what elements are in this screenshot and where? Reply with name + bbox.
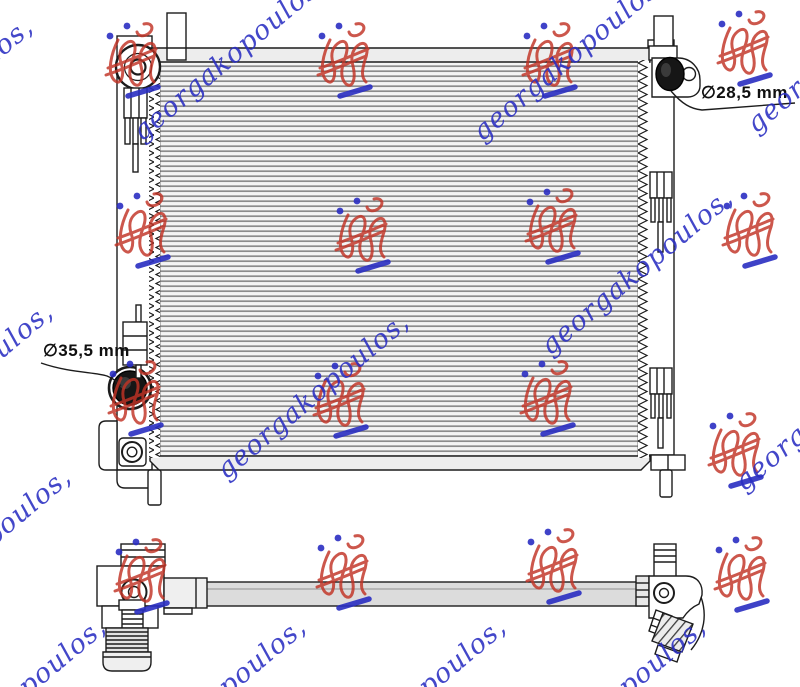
mounting-pin-top-right — [649, 16, 677, 60]
core-serrated-edge-right — [638, 60, 649, 458]
outlet-port — [109, 367, 151, 409]
core-fins — [160, 62, 638, 456]
bottom-view-core-bar — [206, 582, 646, 606]
bottom-view-left-end — [97, 544, 207, 671]
radiator-technical-drawing: ∅28,5 mm ∅35,5 mm georgakopoulos,georgak… — [0, 0, 800, 687]
front-view — [41, 13, 795, 505]
mounting-pin-top-left — [167, 13, 186, 60]
mounting-pin-bottom-right — [660, 470, 672, 497]
grommet-top-left — [116, 45, 160, 89]
dimension-label-outlet-diameter: ∅35,5 mm — [43, 341, 130, 361]
bottom-view — [97, 544, 704, 671]
core-bottom-header — [150, 456, 650, 470]
bottom-view-right-end — [636, 544, 704, 662]
mounting-pin-bottom-left — [148, 470, 161, 505]
core-serrated-edge-left — [149, 60, 160, 458]
dimension-label-inlet-diameter: ∅28,5 mm — [701, 83, 788, 103]
left-tank-foot — [117, 470, 152, 488]
inlet-port — [652, 58, 700, 98]
bottom-right-bracket — [651, 455, 685, 497]
core-top-header — [150, 48, 650, 62]
